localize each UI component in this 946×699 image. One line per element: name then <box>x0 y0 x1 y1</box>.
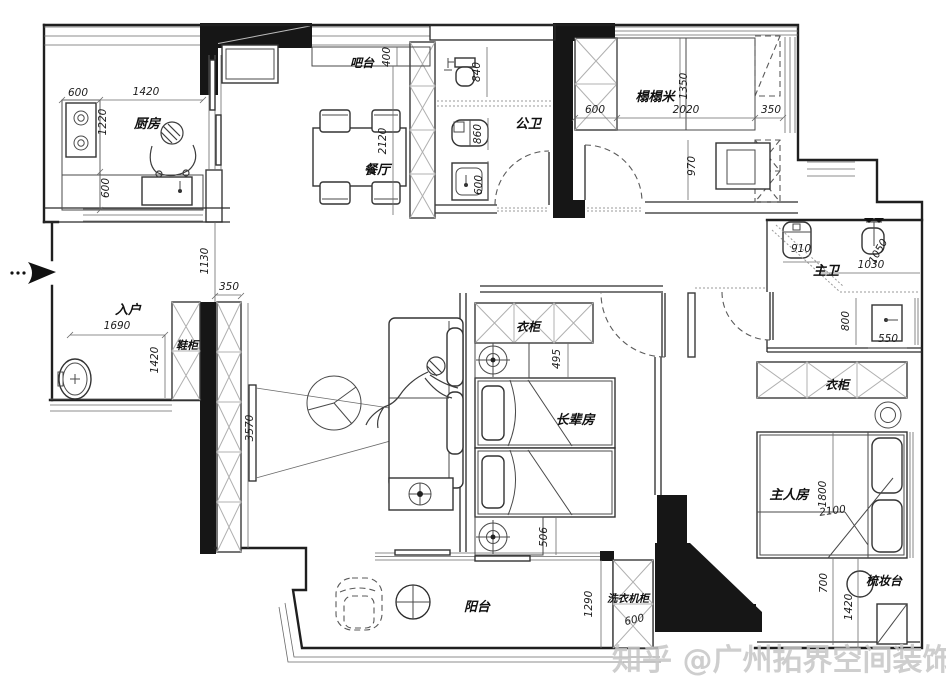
dimension-label: 1800 <box>817 480 829 507</box>
watermark: 知乎 @广州拓界空间装饰 <box>612 643 946 678</box>
dimension-label: 800 <box>840 311 852 331</box>
dimension-label: 1220 <box>97 108 109 135</box>
dimension-label: 700 <box>818 573 830 593</box>
room-label-master-room: 主人房 <box>769 487 810 503</box>
dimension-label: 1290 <box>583 590 595 617</box>
floor-drain <box>396 585 430 619</box>
dining-table <box>313 128 406 186</box>
room-label-entry: 入户 <box>114 302 142 318</box>
dimension-label: 495 <box>551 349 563 369</box>
dimension-label: 1690 <box>104 320 131 332</box>
dimension-label: 600 <box>68 87 88 99</box>
tv-wall-cabinet <box>217 302 241 552</box>
downlight-bottom <box>476 520 510 554</box>
entry-fixtures <box>10 262 91 399</box>
dimension-label: 2020 <box>673 104 700 116</box>
dimension-label: 1130 <box>199 247 211 274</box>
balcony-fixtures <box>336 578 430 630</box>
room-label-wardrobe-elder: 衣柜 <box>516 320 542 334</box>
dimension-label: 600 <box>585 104 605 116</box>
dining-cabinet <box>410 42 435 218</box>
room-label-kitchen: 厨房 <box>133 116 162 132</box>
floor-plan-page: 厨房吧台餐厅公卫榻榻米入户鞋柜衣柜长辈房主卫衣柜主人房梳妆台阳台洗衣机柜 600… <box>0 0 946 699</box>
room-label-public-bath: 公卫 <box>515 117 543 132</box>
room-label-dining: 餐厅 <box>364 162 393 178</box>
dimension-label: 3570 <box>244 414 256 441</box>
dimension-label: 350 <box>761 104 781 116</box>
dresser-table <box>877 604 907 644</box>
room-label-shoe-cabinet: 鞋柜 <box>176 339 200 352</box>
entry-basin <box>58 359 91 399</box>
dimension-label: 2120 <box>377 127 389 154</box>
room-label-master-bath: 主卫 <box>813 263 841 279</box>
room-label-elder-room: 长辈房 <box>555 412 596 428</box>
dimension-label: 400 <box>381 47 393 67</box>
living-fixtures <box>249 318 463 510</box>
dimension-label: 600 <box>473 175 485 195</box>
room-label-tatami: 榻榻米 <box>635 89 676 105</box>
dimension-label: 910 <box>791 243 811 255</box>
kitchen-fixtures <box>62 45 278 210</box>
room-label-washer-cabinet: 洗衣机柜 <box>607 592 651 605</box>
dimension-label: 1350 <box>678 72 690 99</box>
dimension-label: 550 <box>878 333 898 345</box>
room-label-balcony: 阳台 <box>464 599 491 615</box>
dimension-label: 600 <box>100 178 112 198</box>
room-label-wardrobe-master: 衣柜 <box>825 378 851 392</box>
kitchen-sink <box>142 177 192 205</box>
balcony-armchair <box>336 578 382 630</box>
dimension-label: 970 <box>686 156 698 176</box>
dimension-label: 1420 <box>843 593 855 620</box>
elder-bed-2 <box>475 448 615 517</box>
room-label-bar: 吧台 <box>350 56 375 70</box>
fridge <box>222 45 278 83</box>
ceiling-symbol <box>875 402 901 428</box>
dimension-label: 840 <box>471 62 483 82</box>
tatami-dashed-cabinet-top <box>755 36 780 96</box>
floor-plan-drawing: 厨房吧台餐厅公卫榻榻米入户鞋柜衣柜长辈房主卫衣柜主人房梳妆台阳台洗衣机柜 600… <box>0 0 946 699</box>
dimension-label: 860 <box>472 124 484 144</box>
tatami-cabinet <box>575 38 617 130</box>
dimension-label: 350 <box>219 281 239 293</box>
ceiling-fan <box>307 376 361 430</box>
dimension-label: 506 <box>538 527 550 547</box>
downlight-top <box>476 343 510 377</box>
dimension-label: 1420 <box>133 86 160 98</box>
entry-arrow-icon <box>10 262 56 284</box>
master-room-fixtures <box>757 402 907 644</box>
dimension-label: 1420 <box>149 346 161 373</box>
room-label-dresser: 梳妆台 <box>866 574 903 588</box>
nightstand-bottom <box>475 517 543 555</box>
elder-room-fixtures <box>475 343 615 555</box>
sofa <box>389 318 463 510</box>
